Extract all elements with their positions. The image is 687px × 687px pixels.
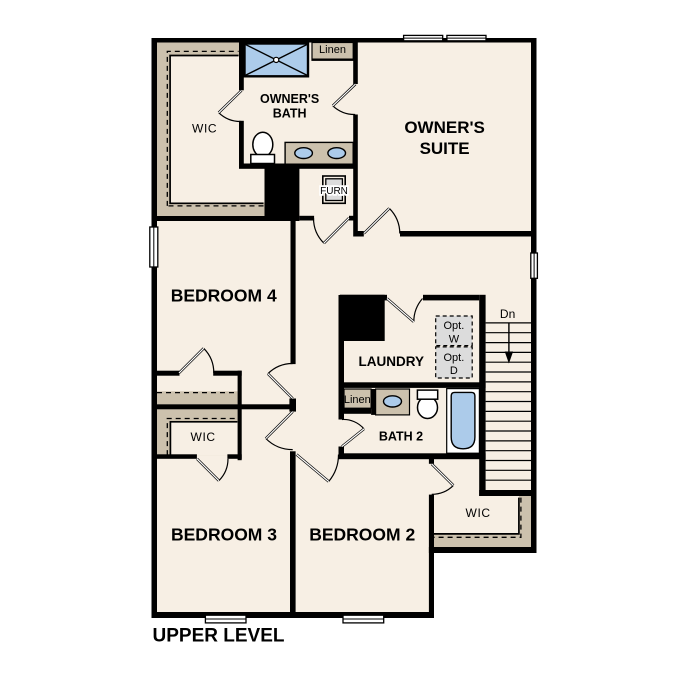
svg-text:BATH 2: BATH 2 (379, 429, 423, 443)
svg-text:BEDROOM 3: BEDROOM 3 (171, 525, 277, 545)
svg-text:W: W (449, 333, 460, 345)
svg-text:Opt.: Opt. (444, 320, 465, 332)
svg-text:SUITE: SUITE (420, 139, 470, 158)
svg-text:FURN: FURN (320, 186, 348, 197)
svg-text:Dn: Dn (500, 307, 515, 321)
svg-text:Linen: Linen (344, 394, 371, 406)
svg-text:BEDROOM 4: BEDROOM 4 (171, 286, 277, 306)
svg-text:UPPER LEVEL: UPPER LEVEL (153, 626, 285, 647)
svg-text:LAUNDRY: LAUNDRY (359, 354, 425, 369)
svg-text:WIC: WIC (192, 121, 217, 135)
svg-text:OWNER'S: OWNER'S (404, 118, 485, 137)
svg-text:WIC: WIC (466, 506, 491, 520)
svg-text:BEDROOM 2: BEDROOM 2 (309, 525, 415, 545)
svg-text:Opt.: Opt. (444, 352, 465, 364)
svg-text:D: D (450, 365, 458, 377)
svg-text:WIC: WIC (191, 430, 216, 444)
svg-text:BATH: BATH (273, 106, 307, 120)
svg-text:Linen: Linen (319, 44, 346, 56)
svg-text:OWNER'S: OWNER'S (260, 92, 319, 106)
